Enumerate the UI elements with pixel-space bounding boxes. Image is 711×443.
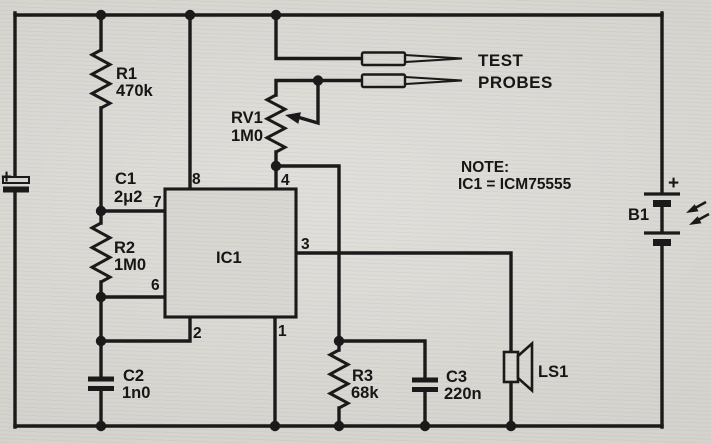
speaker-cone <box>518 344 532 391</box>
ic1-pin1-label: 1 <box>278 323 287 340</box>
junction-dot <box>271 10 281 20</box>
note-heading: NOTE: <box>461 159 509 176</box>
capacitor-c2-plate <box>88 386 114 391</box>
note-body: IC1 = ICM75555 <box>458 176 572 193</box>
ic1-ref: IC1 <box>216 249 242 267</box>
ic1-pin8-label: 8 <box>192 171 201 188</box>
test-probe-lower <box>362 75 462 88</box>
c1-value: 2μ2 <box>114 188 142 206</box>
arrow-head <box>689 216 702 225</box>
pin2-wire <box>101 317 190 341</box>
upper-probe-wire <box>276 15 362 59</box>
r3-value: 68k <box>351 384 379 402</box>
potentiometer-rv1-symbol <box>267 95 285 152</box>
speaker-ls1-symbol <box>504 344 532 391</box>
junction-dot <box>334 336 344 346</box>
r2-ref: R2 <box>114 239 135 257</box>
r2-value: 1M0 <box>114 256 146 274</box>
circuit-schematic: + R1 470k C1 2μ2 R2 1M0 C2 1n0 RV1 1M0 R… <box>0 0 711 443</box>
ic1-pin7-label: 7 <box>153 194 162 211</box>
junction-dot <box>270 421 280 431</box>
r3-ref: R3 <box>352 367 373 385</box>
capacitor-c3-plate <box>412 378 438 383</box>
probe-label-probes: PROBES <box>478 73 553 92</box>
c1-ref: C1 <box>115 170 136 188</box>
probe-handle <box>362 53 405 66</box>
rv1-ref: RV1 <box>231 109 263 127</box>
rv1-wiper-arrow-icon <box>285 112 301 124</box>
ic1-pin2-label: 2 <box>193 325 202 342</box>
junction-dot <box>271 161 281 171</box>
schematic-page: + R1 470k C1 2μ2 R2 1M0 C2 1n0 RV1 1M0 R… <box>0 0 711 443</box>
junction-dot <box>334 421 344 431</box>
junction-dot <box>313 75 323 85</box>
ic1-pin4-label: 4 <box>281 172 290 189</box>
rv1-value: 1M0 <box>231 127 263 145</box>
junction-dot <box>185 10 195 20</box>
r1-value: 470k <box>116 82 154 100</box>
c1-plus-sign: + <box>1 167 12 188</box>
junction-dot <box>96 10 106 20</box>
resistor-r3-symbol <box>330 350 348 408</box>
ls1-ref: LS1 <box>538 363 568 381</box>
junction-dot <box>96 292 106 302</box>
resistor-r1-symbol <box>92 50 110 108</box>
c3-value: 220n <box>444 385 482 403</box>
junction-dot <box>96 206 106 216</box>
arrow-head <box>686 204 699 213</box>
speaker-driver <box>504 352 518 382</box>
junction-dot <box>96 421 106 431</box>
c3-ref: C3 <box>446 368 467 386</box>
capacitor-c3-plate <box>412 387 438 392</box>
probe-label-test: TEST <box>478 51 524 70</box>
ic1-pin3-label: 3 <box>301 236 310 253</box>
b1-ref: B1 <box>628 206 649 224</box>
c2-ref: C2 <box>123 367 144 385</box>
capacitor-c2-plate <box>88 377 114 382</box>
probe-handle <box>362 75 405 88</box>
rv1-wiper-wire <box>299 81 318 124</box>
battery-arrows-icon <box>686 202 709 225</box>
b1-plus-sign: + <box>668 173 679 194</box>
junction-dot <box>506 421 516 431</box>
junction-dot <box>420 421 430 431</box>
resistor-r2-symbol <box>92 223 110 282</box>
junction-dot <box>96 336 106 346</box>
test-probe-upper <box>362 53 462 66</box>
ic1-pin6-label: 6 <box>151 277 160 294</box>
c2-value: 1n0 <box>122 384 150 402</box>
r1-ref: R1 <box>116 65 137 83</box>
